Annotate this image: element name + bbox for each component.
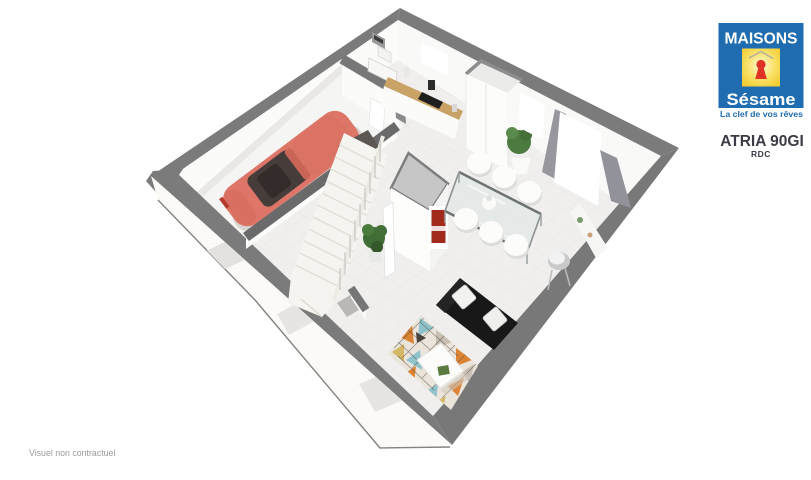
svg-text:RDC: RDC — [751, 149, 771, 159]
svg-text:Sésame: Sésame — [727, 90, 796, 109]
svg-text:MAISONS: MAISONS — [725, 31, 798, 48]
svg-text:ATRIA 90GI: ATRIA 90GI — [720, 133, 804, 150]
svg-text:Visuel non contractuel: Visuel non contractuel — [29, 448, 115, 458]
svg-text:La clef de vos rêves: La clef de vos rêves — [720, 109, 803, 119]
